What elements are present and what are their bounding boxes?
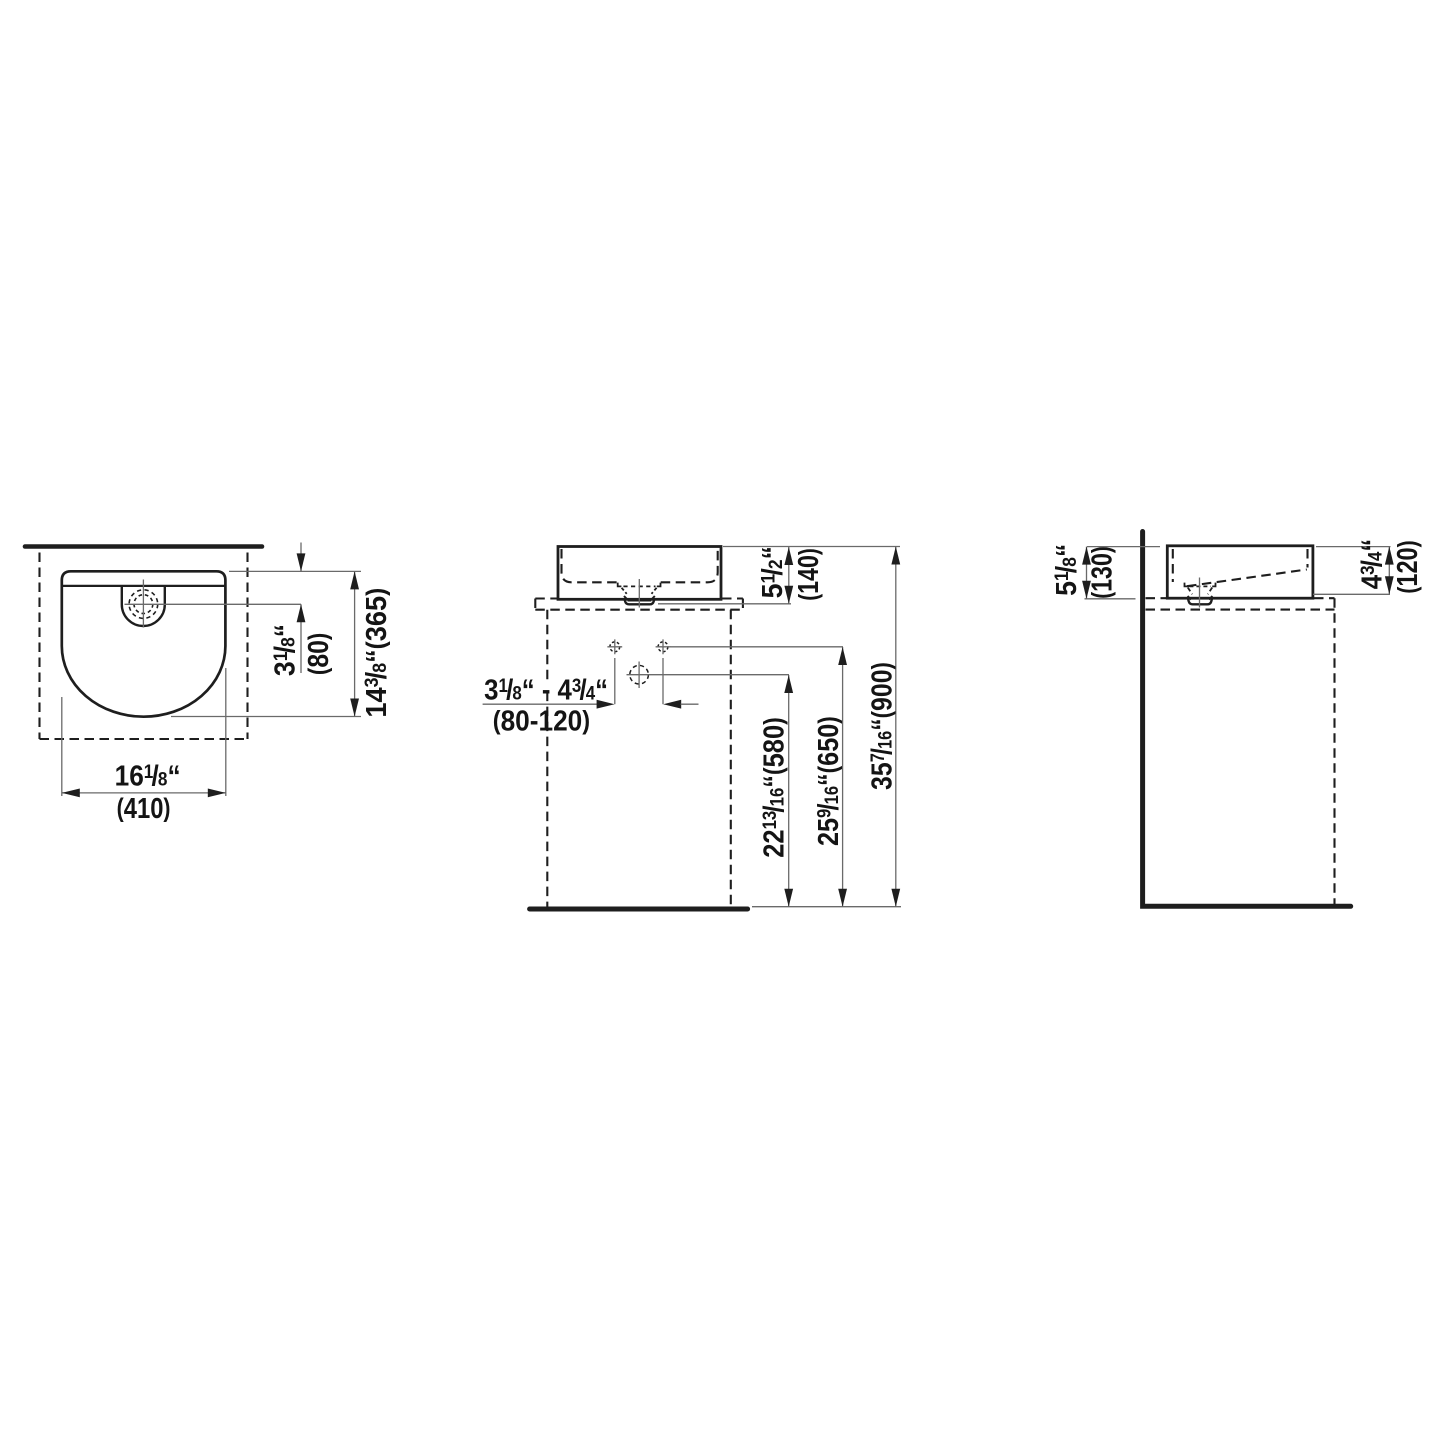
svg-text:143/8“(365): 143/8“(365) [360, 588, 392, 718]
svg-text:2213/16“(580): 2213/16“(580) [757, 717, 790, 858]
svg-text:51/8“: 51/8“ [1050, 544, 1082, 596]
svg-text:(80-120): (80-120) [493, 704, 590, 737]
svg-text:51/2“: 51/2“ [756, 546, 788, 598]
svg-text:(130): (130) [1085, 546, 1118, 599]
svg-text:31/8“: 31/8“ [268, 624, 300, 676]
svg-text:(80): (80) [302, 633, 334, 675]
svg-text:(120): (120) [1391, 540, 1424, 593]
svg-text:(140): (140) [792, 548, 825, 601]
svg-text:43/4“: 43/4“ [1355, 539, 1388, 590]
svg-text:(410): (410) [117, 792, 171, 825]
svg-text:259/16“(650): 259/16“(650) [811, 716, 844, 846]
svg-text:357/16“(900): 357/16“(900) [866, 662, 898, 790]
